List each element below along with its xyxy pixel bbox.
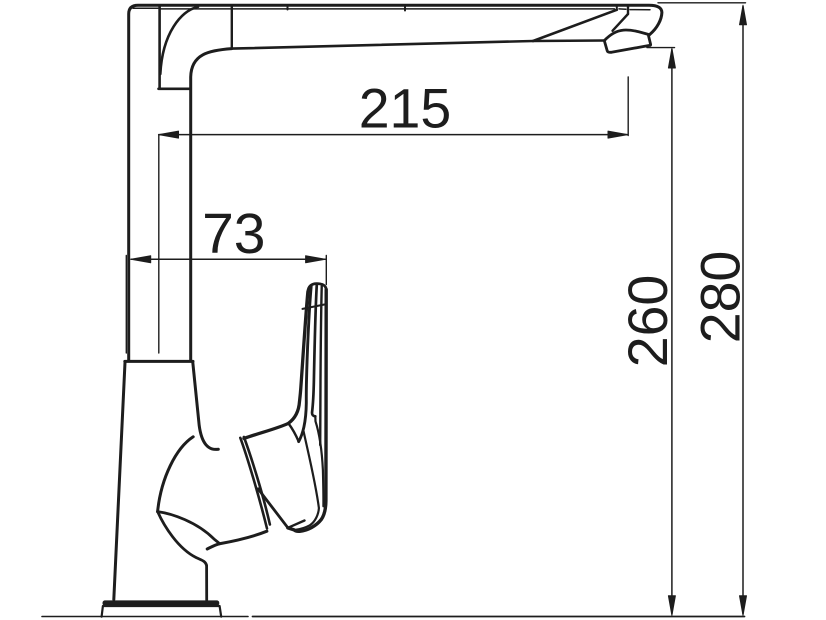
svg-text:280: 280 xyxy=(690,251,752,344)
svg-text:73: 73 xyxy=(202,202,265,266)
svg-text:260: 260 xyxy=(617,275,679,368)
svg-text:215: 215 xyxy=(359,78,452,140)
